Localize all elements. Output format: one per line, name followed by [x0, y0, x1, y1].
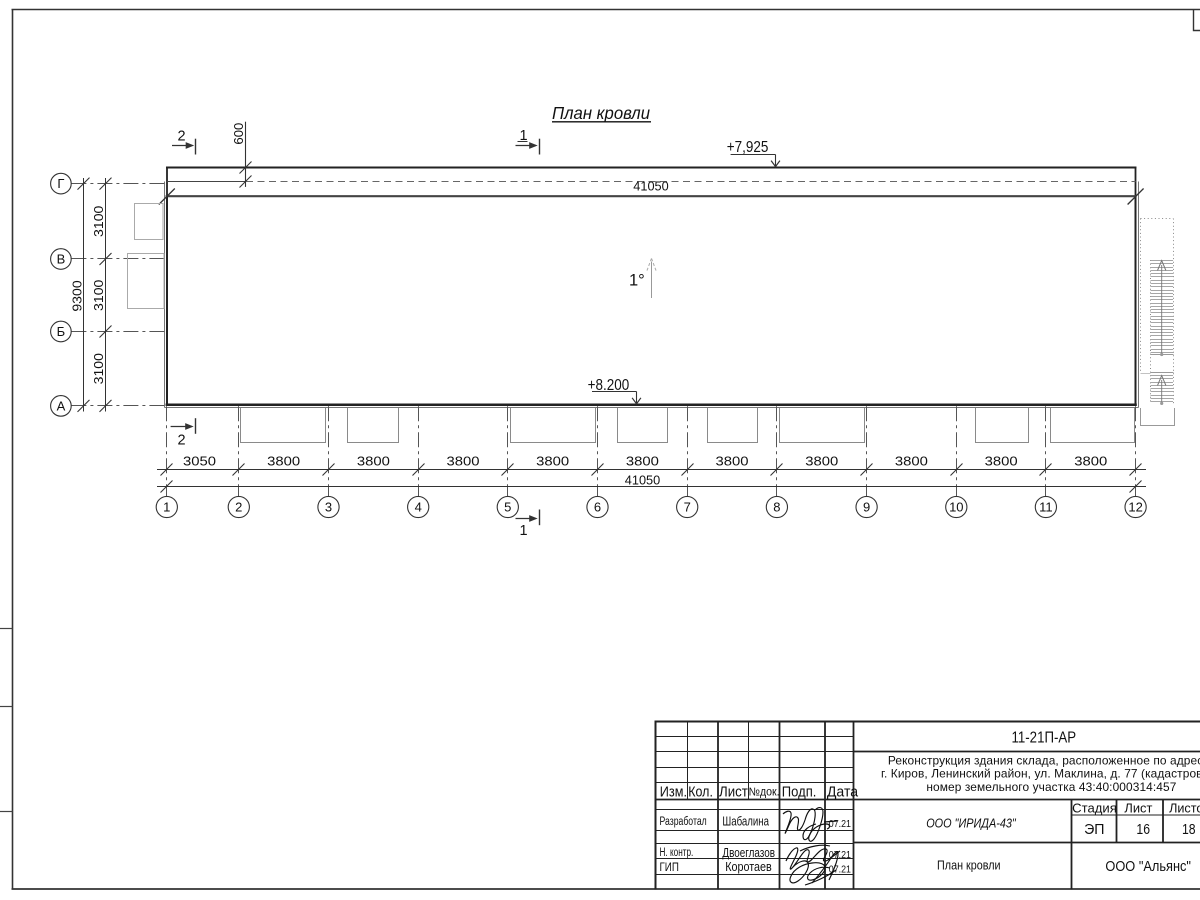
svg-text:Подп.: Подп. — [782, 785, 817, 801]
svg-text:Реконструкция здания склада, р: Реконструкция здания склада, расположенн… — [888, 753, 1200, 767]
svg-text:А: А — [57, 399, 66, 414]
svg-text:6: 6 — [594, 500, 601, 515]
svg-text:г. Киров, Ленинский район, ул.: г. Киров, Ленинский район, ул. Маклина, … — [881, 767, 1200, 781]
svg-text:+7,925: +7,925 — [727, 139, 769, 156]
svg-text:3: 3 — [325, 500, 332, 515]
svg-text:3050: 3050 — [183, 453, 216, 468]
svg-text:3800: 3800 — [357, 453, 390, 468]
svg-text:ЭП: ЭП — [1084, 822, 1104, 838]
svg-text:Кол.: Кол. — [688, 785, 713, 801]
svg-text:10: 10 — [949, 500, 963, 515]
svg-text:5: 5 — [504, 500, 511, 515]
svg-text:16: 16 — [1136, 822, 1150, 838]
svg-text:11-21П-АР: 11-21П-АР — [1012, 730, 1077, 747]
svg-text:номер земельного участка 43:40: номер земельного участка 43:40:000314:45… — [926, 780, 1176, 794]
svg-text:1: 1 — [163, 500, 170, 515]
svg-text:Н. контр.: Н. контр. — [660, 847, 694, 859]
svg-text:ООО "Альянс": ООО "Альянс" — [1105, 858, 1191, 875]
svg-text:ГИП: ГИП — [660, 862, 679, 874]
svg-text:9: 9 — [863, 500, 870, 515]
svg-text:2: 2 — [177, 129, 185, 145]
svg-text:Разработал: Разработал — [660, 816, 707, 828]
svg-text:Коротаев: Коротаев — [725, 859, 772, 874]
svg-text:В: В — [57, 252, 66, 267]
svg-text:Листов: Листов — [1169, 802, 1200, 816]
svg-text:Изм.: Изм. — [660, 785, 687, 801]
svg-text:3100: 3100 — [91, 280, 106, 311]
svg-text:3100: 3100 — [91, 353, 106, 384]
svg-text:9300: 9300 — [69, 280, 84, 311]
svg-text:41050: 41050 — [625, 472, 660, 487]
svg-text:600: 600 — [231, 123, 246, 145]
svg-text:3800: 3800 — [895, 453, 928, 468]
svg-text:Лист: Лист — [1124, 802, 1152, 816]
svg-text:ООО "ИРИДА-43": ООО "ИРИДА-43" — [926, 816, 1017, 831]
svg-text:2: 2 — [177, 433, 185, 449]
svg-text:3800: 3800 — [447, 453, 480, 468]
svg-text:Г: Г — [57, 176, 64, 191]
svg-text:3800: 3800 — [985, 453, 1018, 468]
svg-text:41050: 41050 — [633, 179, 668, 194]
svg-text:3800: 3800 — [805, 453, 838, 468]
svg-text:3800: 3800 — [267, 453, 300, 468]
svg-text:Стадия: Стадия — [1072, 802, 1117, 816]
svg-text:2: 2 — [235, 500, 242, 515]
svg-text:1: 1 — [519, 523, 527, 539]
svg-text:План кровли: План кровли — [552, 103, 650, 123]
svg-text:4: 4 — [415, 500, 422, 515]
svg-text:3800: 3800 — [716, 453, 749, 468]
svg-text:3800: 3800 — [626, 453, 659, 468]
svg-text:07.21: 07.21 — [829, 818, 851, 830]
svg-text:11: 11 — [1039, 500, 1053, 515]
svg-text:Дата: Дата — [827, 785, 859, 801]
svg-text:3800: 3800 — [1074, 453, 1107, 468]
svg-text:Двоеглазов: Двоеглазов — [722, 845, 775, 860]
svg-text:План кровли: План кровли — [937, 858, 1001, 872]
svg-text:8: 8 — [773, 500, 780, 515]
svg-text:3800: 3800 — [536, 453, 569, 468]
svg-text:18: 18 — [1182, 822, 1196, 838]
svg-text:7: 7 — [684, 500, 691, 515]
svg-text:Лист: Лист — [719, 785, 748, 801]
svg-text:12: 12 — [1128, 500, 1142, 515]
svg-text:№док.: №док. — [749, 787, 780, 799]
svg-text:Б: Б — [57, 324, 66, 339]
svg-text:Шабалина: Шабалина — [722, 814, 769, 829]
svg-text:3100: 3100 — [91, 206, 106, 237]
svg-text:1°: 1° — [629, 272, 645, 290]
